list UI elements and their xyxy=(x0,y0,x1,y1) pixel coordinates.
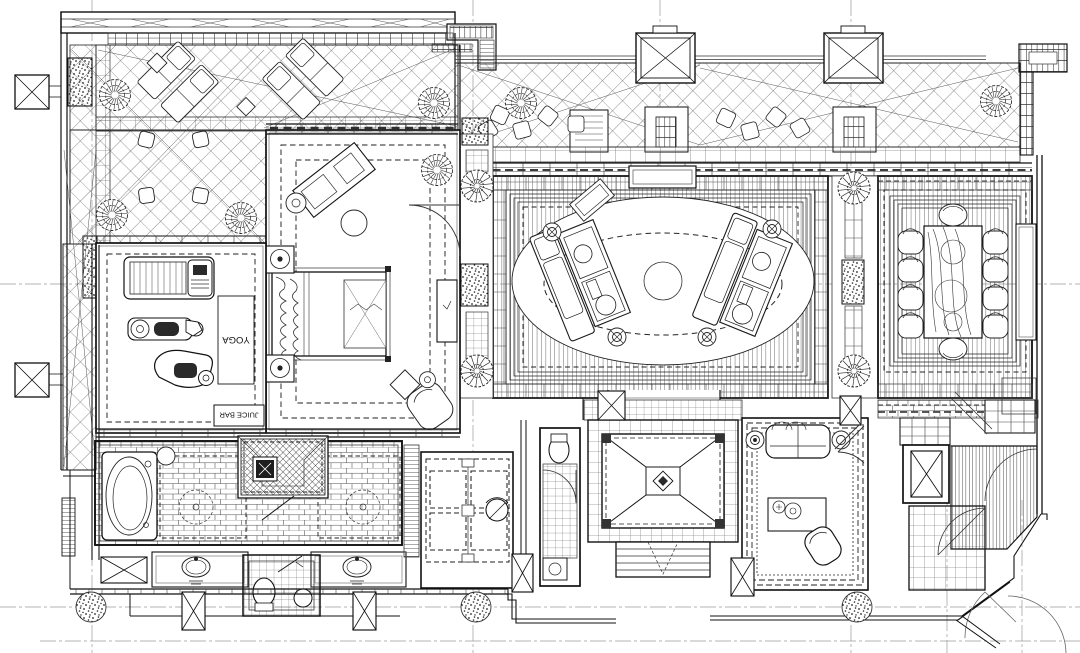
svg-text:JUICE BAR: JUICE BAR xyxy=(219,411,259,420)
svg-text:YOGA: YOGA xyxy=(222,334,250,345)
